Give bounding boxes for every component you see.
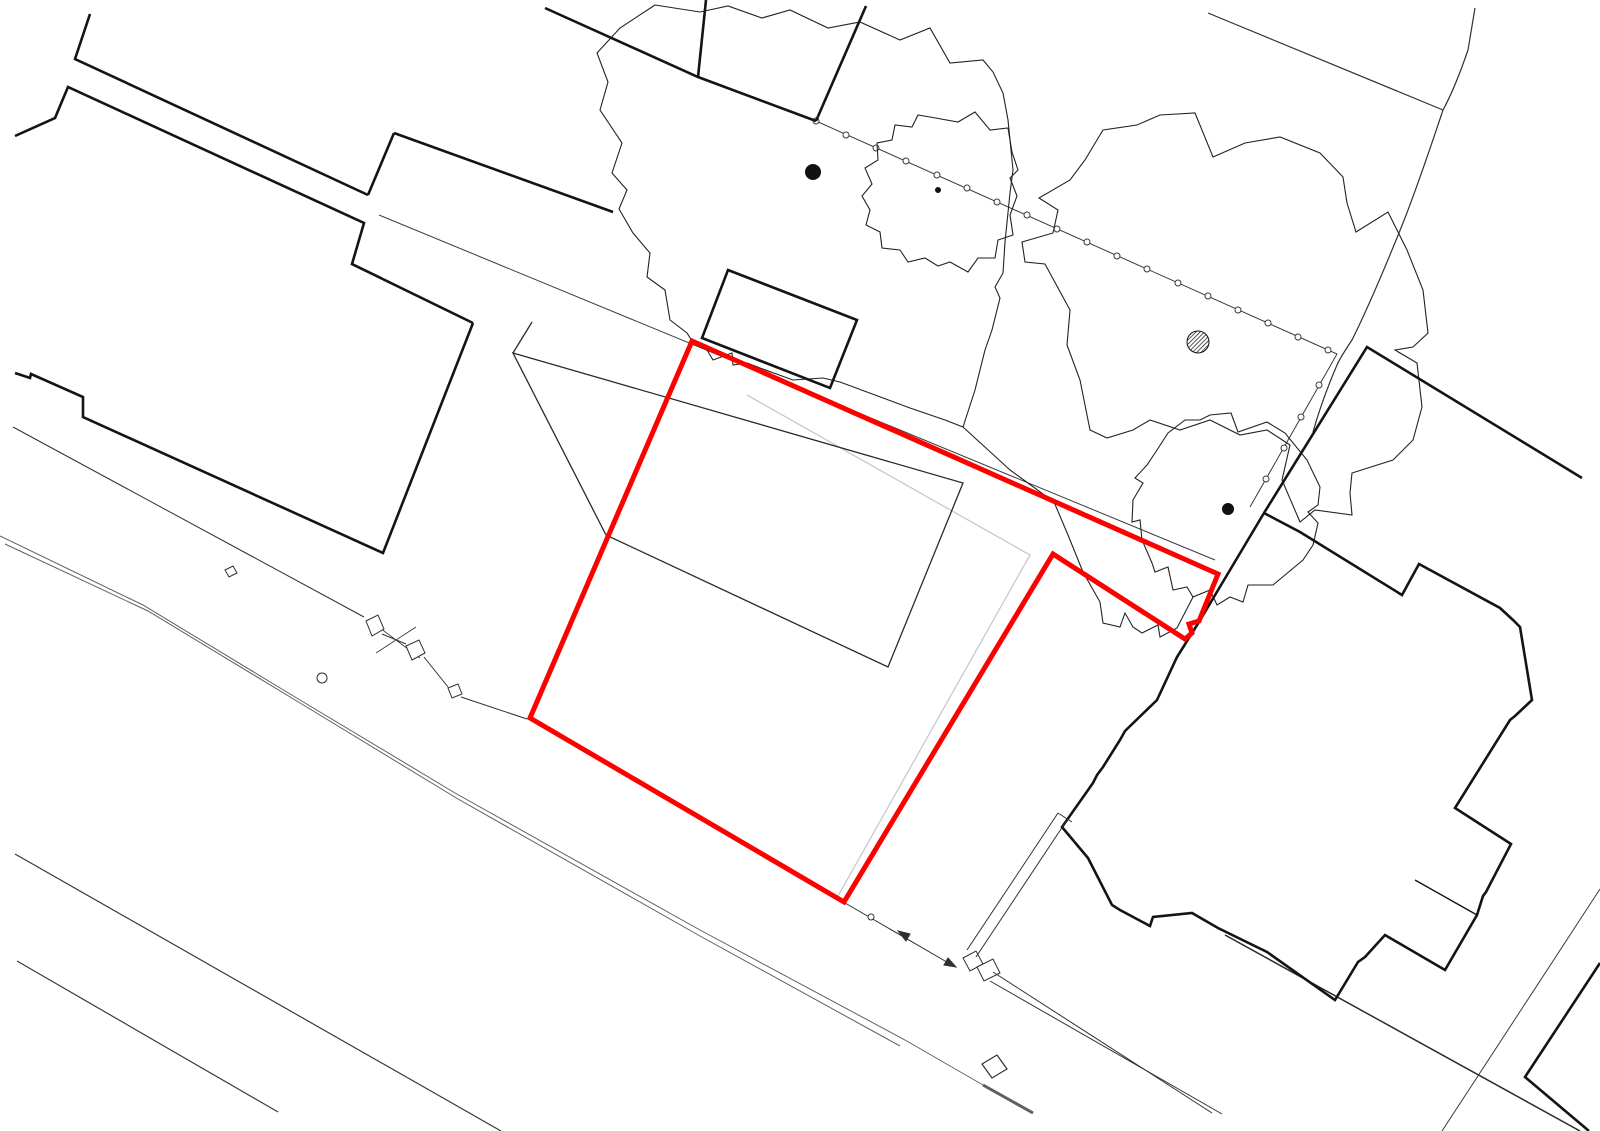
inner-building <box>513 353 963 667</box>
strip-top-line <box>75 14 368 195</box>
survey-markers <box>1265 320 1271 326</box>
block-top-a <box>545 8 816 121</box>
trunk-dot-small <box>936 188 941 193</box>
survey-markers <box>964 185 970 191</box>
fence-post-tiny <box>225 566 237 577</box>
fence-line-d <box>461 697 527 719</box>
survey-polyline <box>816 121 1337 507</box>
survey-markers <box>903 158 909 164</box>
drawing-root <box>0 0 1600 1131</box>
site-plan-svg <box>0 0 1600 1131</box>
survey-line-with-markers <box>813 118 1337 507</box>
boundary-thin-topright <box>1208 13 1443 110</box>
strip2-top-line <box>394 133 613 212</box>
tree2-canopy <box>1022 113 1428 522</box>
survey-markers <box>1263 476 1269 482</box>
gate-arrow-line <box>845 903 952 965</box>
left-building <box>15 323 473 553</box>
survey-markers <box>1205 293 1211 299</box>
survey-markers <box>1114 253 1120 259</box>
fence-line-a <box>13 427 364 617</box>
gate-arrow-head-se <box>944 958 956 967</box>
survey-markers <box>1175 280 1181 286</box>
survey-markers <box>1295 334 1301 340</box>
fence-se-pair-2 <box>990 981 1222 1114</box>
strip-bottom-line <box>15 87 473 323</box>
parcel-boundary-red <box>530 341 1218 902</box>
survey-markers <box>934 172 940 178</box>
street-line-right <box>1442 889 1600 1131</box>
trunk-dot-tree3 <box>1223 504 1234 515</box>
street-line-1 <box>15 854 501 1131</box>
kerb-line-2 <box>5 544 900 1046</box>
right-building-outline <box>1062 347 1582 1000</box>
survey-markers <box>994 199 1000 205</box>
red-parcel <box>530 341 1218 902</box>
street-line-2 <box>17 961 278 1112</box>
block-top-c <box>816 6 866 121</box>
small-hut <box>982 1055 1007 1078</box>
tree-canopies <box>597 5 1428 637</box>
survey-markers <box>1298 414 1304 420</box>
tree-trunk-markers <box>806 165 1234 515</box>
survey-markers <box>1316 382 1322 388</box>
trunk-dot-large <box>806 165 821 180</box>
big-canopy-outline <box>597 5 1013 427</box>
survey-markers <box>1054 226 1060 232</box>
big-canopy-tail <box>963 427 1193 637</box>
survey-markers <box>1024 212 1030 218</box>
survey-markers <box>1281 445 1287 451</box>
fence-se-pair-1 <box>993 972 1212 1113</box>
trunk-dot-hatched <box>1187 331 1209 353</box>
fence-line-c <box>424 657 448 687</box>
shed-and-inner-building <box>513 270 963 667</box>
gate-marker-circle <box>868 914 874 920</box>
utility-circle <box>317 673 327 683</box>
inner-building-stub <box>513 322 532 353</box>
street-line-se <box>1225 935 1580 1131</box>
site-plan-page <box>0 0 1600 1131</box>
road-curve <box>1313 8 1475 432</box>
kerb-line-1 <box>0 536 983 1085</box>
survey-markers <box>1235 307 1241 313</box>
annex-divider <box>1415 880 1477 915</box>
survey-markers <box>843 132 849 138</box>
strip2-left-edge <box>368 133 394 195</box>
survey-markers <box>1325 347 1331 353</box>
left-building-outline <box>15 323 473 553</box>
kerb-end-thick <box>983 1085 1033 1113</box>
corner-building-se <box>1525 963 1600 1131</box>
fence-post-mid <box>406 640 425 660</box>
fence-post-big <box>366 615 384 636</box>
fence-nw-pair-2 <box>976 820 1067 957</box>
shed <box>702 270 857 388</box>
survey-markers <box>873 145 879 151</box>
survey-markers <box>1144 266 1150 272</box>
fence-post-small <box>448 684 462 698</box>
fence-nw-pair-1 <box>967 813 1058 950</box>
survey-markers <box>1084 239 1090 245</box>
